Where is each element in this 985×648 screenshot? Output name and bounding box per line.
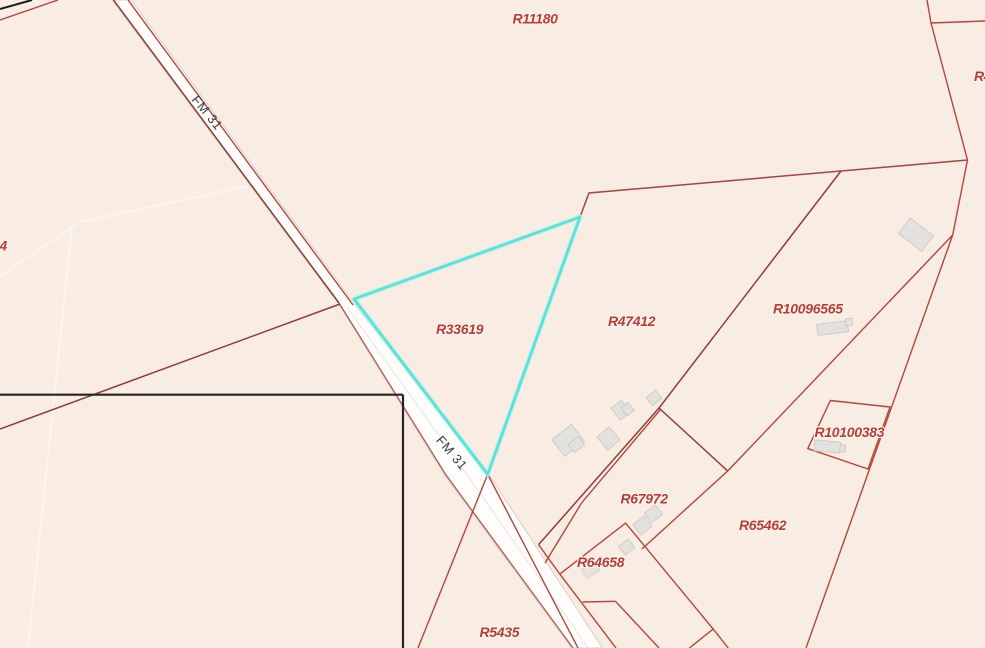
svg-text:R67972: R67972 <box>621 491 669 507</box>
svg-text:R33619: R33619 <box>436 321 484 337</box>
svg-text:R10096565: R10096565 <box>773 301 843 317</box>
svg-text:R47412: R47412 <box>608 313 656 329</box>
svg-text:R11180: R11180 <box>513 11 559 27</box>
svg-text:R10100383: R10100383 <box>815 424 885 440</box>
svg-text:R4: R4 <box>974 68 985 84</box>
svg-text:R65462: R65462 <box>739 517 787 533</box>
svg-text:R64658: R64658 <box>577 554 625 570</box>
svg-text:R5435: R5435 <box>480 624 520 640</box>
svg-text:4: 4 <box>0 238 8 254</box>
